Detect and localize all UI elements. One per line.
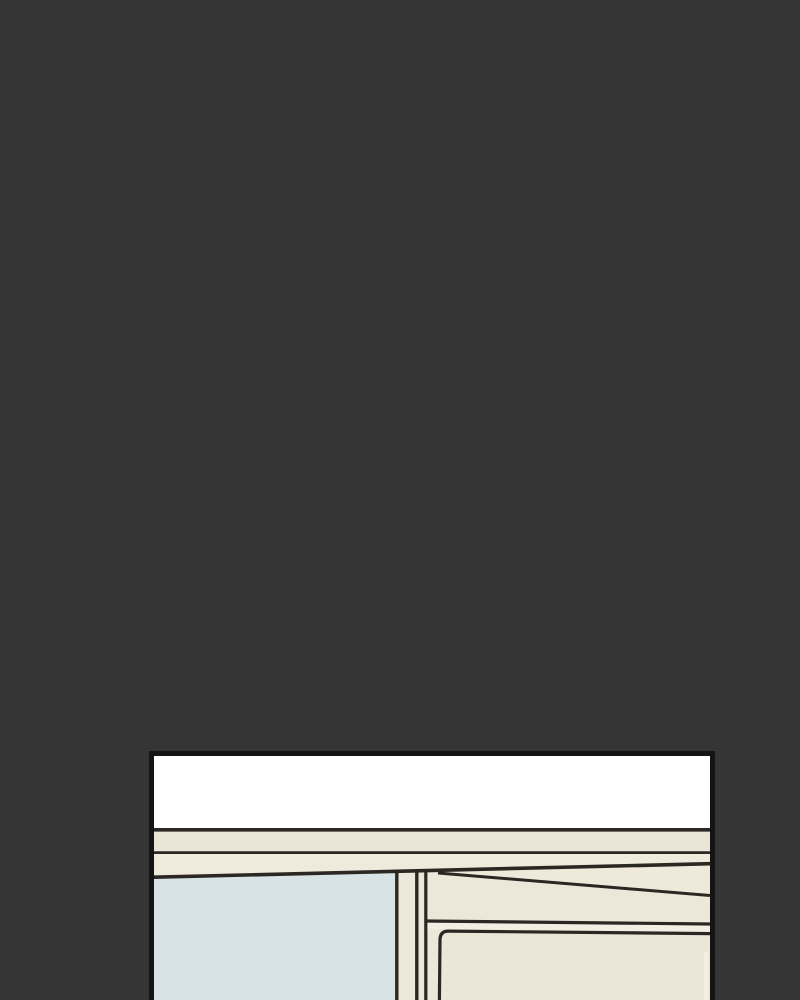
ceiling-region (154, 756, 710, 830)
window-pane (154, 871, 396, 1000)
trim-band-upper (154, 830, 710, 853)
comic-panel (149, 751, 715, 1000)
drawer-front (441, 932, 710, 1000)
panel-artwork (154, 756, 710, 1000)
drawer-edge-highlight (704, 952, 708, 1000)
reader-scroll-area[interactable] (0, 0, 800, 1000)
window-mullion (398, 869, 425, 1000)
